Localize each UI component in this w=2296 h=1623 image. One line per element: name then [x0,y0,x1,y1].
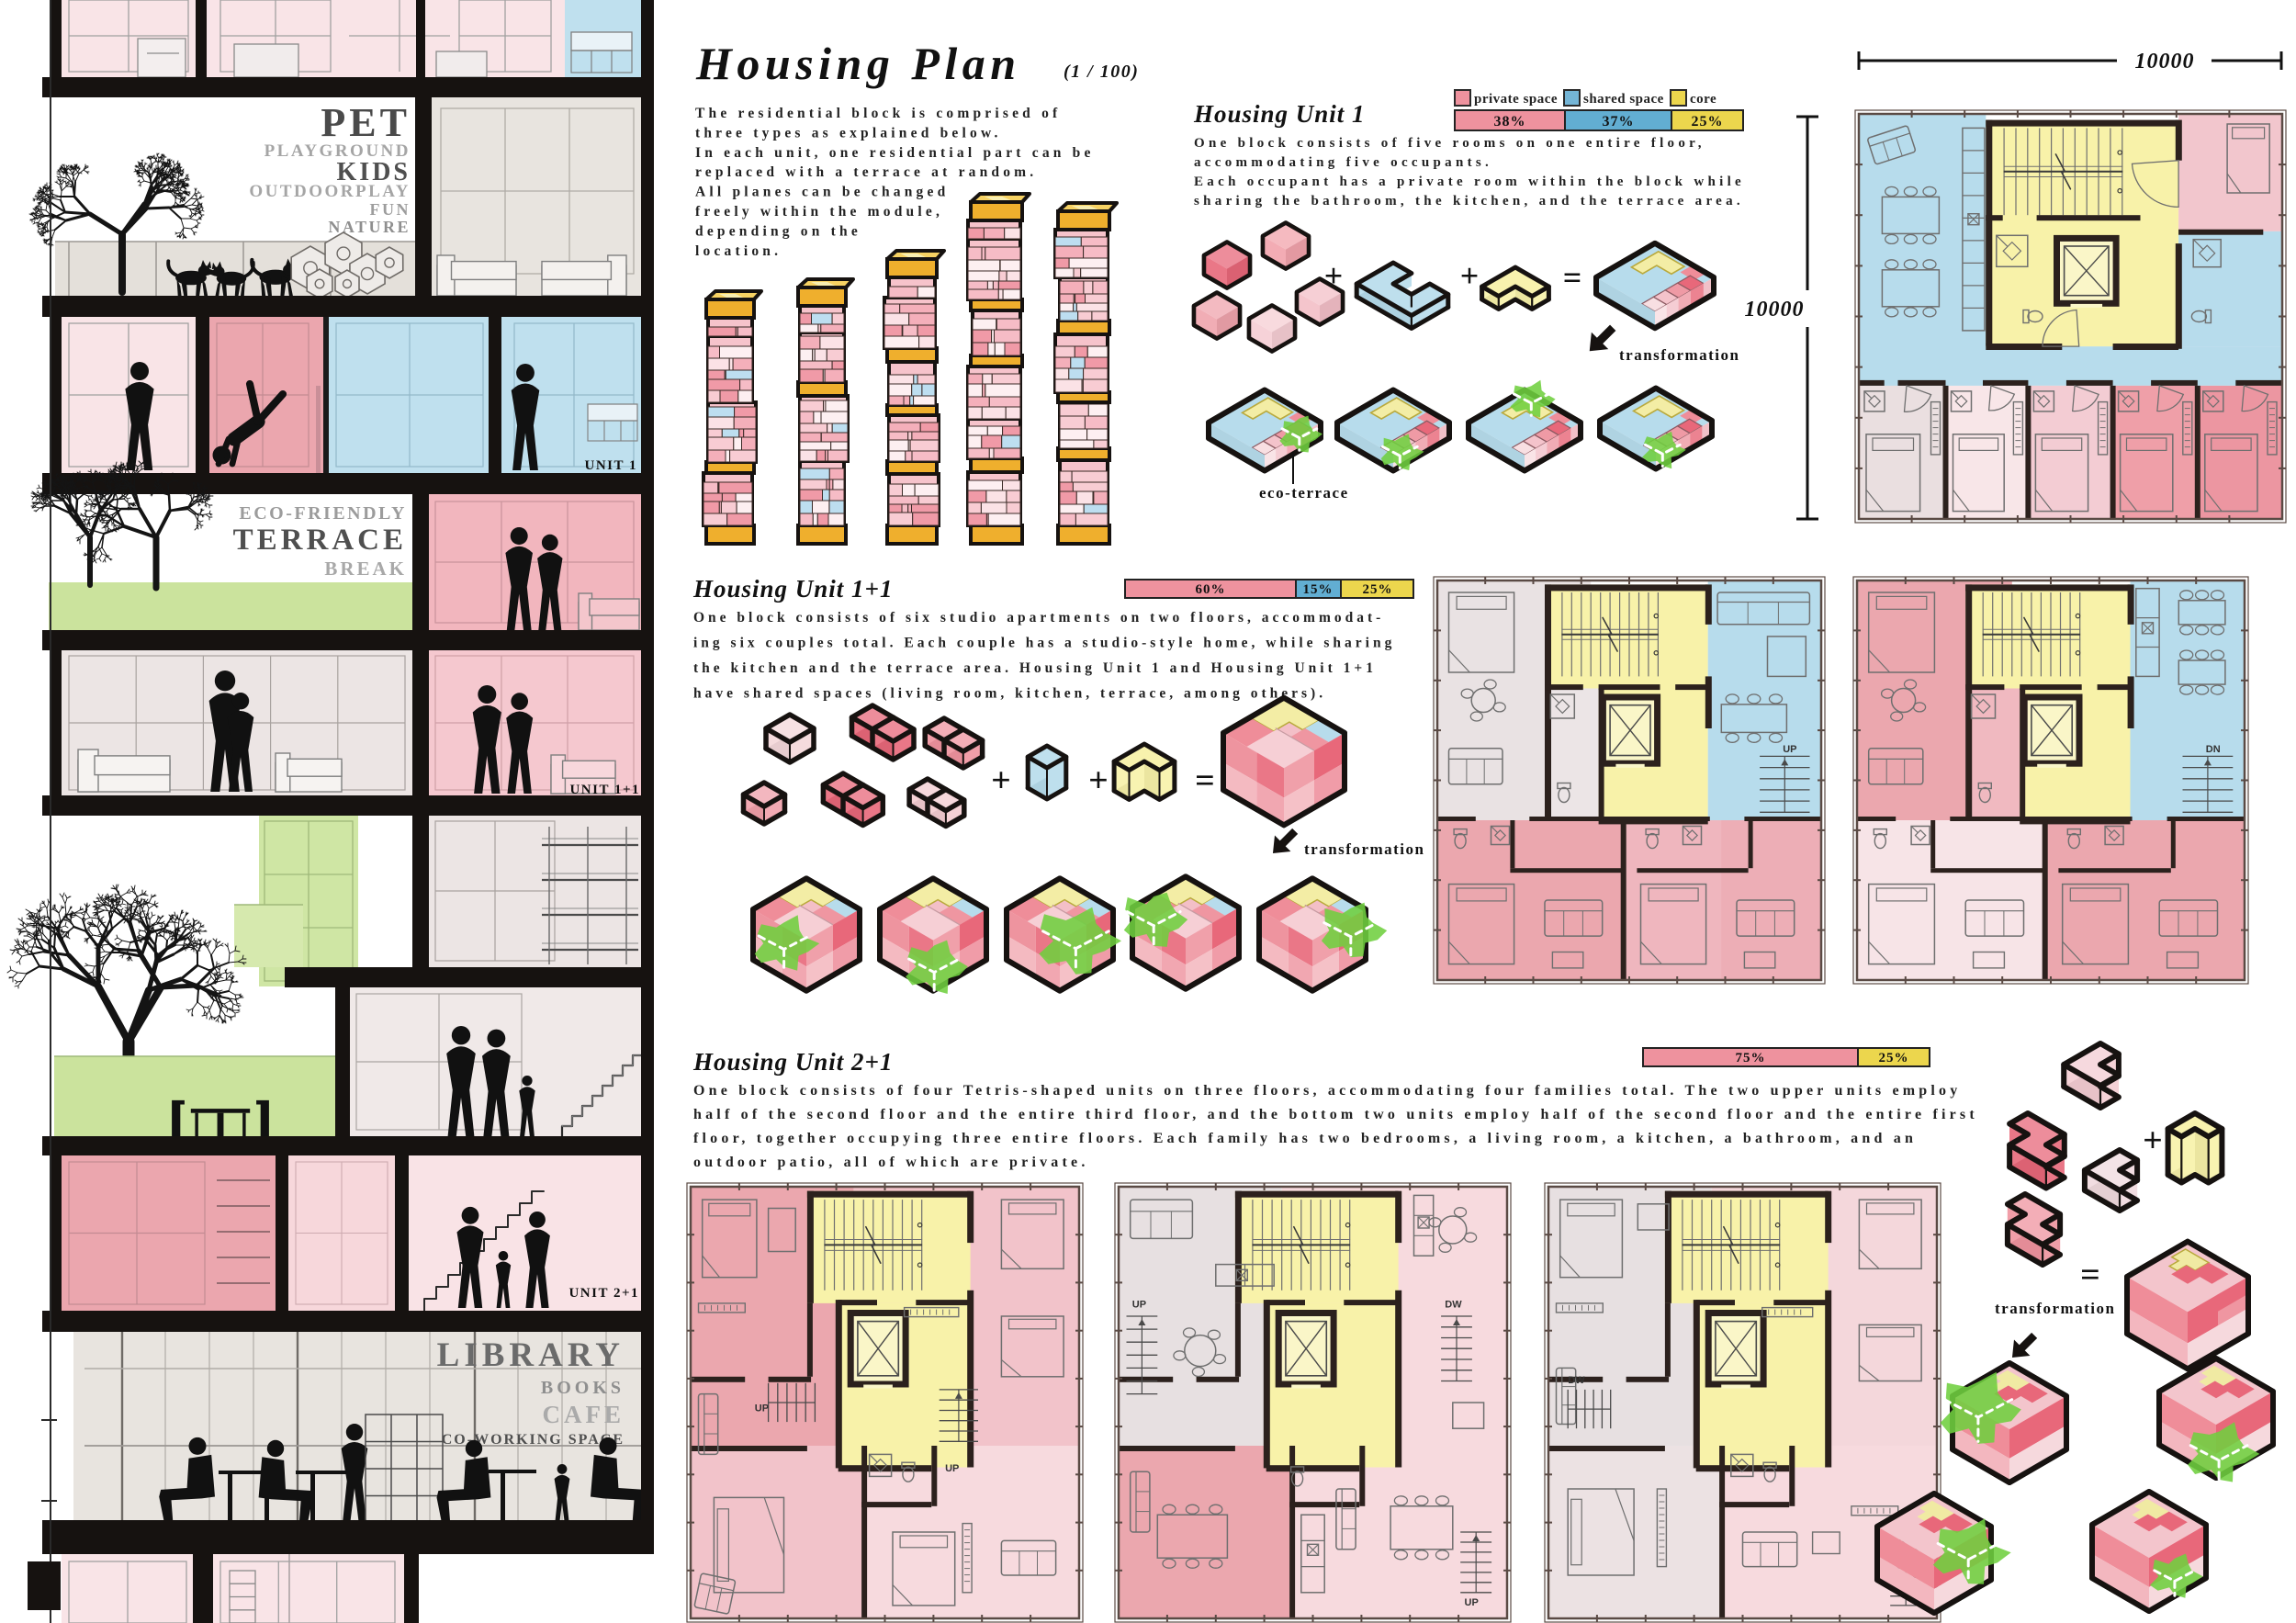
svg-text:BOOKS: BOOKS [541,1378,625,1398]
svg-text:UNIT 2+1: UNIT 2+1 [568,1286,639,1301]
svg-text:ing six couples total. Each co: ing six couples total. Each couple has a… [693,636,1395,651]
svg-text:25%: 25% [1692,114,1724,130]
svg-text:three types as explained below: three types as explained below. [695,125,1002,141]
svg-text:All planes can be changed: All planes can be changed [695,185,949,200]
svg-text:FUN: FUN [370,200,411,219]
svg-text:+: + [991,761,1011,800]
svg-text:DN: DN [2206,744,2221,755]
svg-text:Housing Unit 2+1: Housing Unit 2+1 [692,1048,893,1076]
svg-text:accommodating five occupants.: accommodating five occupants. [1194,155,1492,170]
svg-text:(1 / 100): (1 / 100) [1064,62,1139,82]
svg-text:+: + [1460,257,1480,294]
svg-text:=: = [2080,1256,2100,1294]
svg-text:The residential block is compr: The residential block is comprised of [695,106,1061,121]
svg-text:10000: 10000 [1745,298,1805,321]
svg-text:LIBRARY: LIBRARY [437,1336,625,1374]
svg-text:TERRACE: TERRACE [233,524,407,557]
svg-text:CAFE: CAFE [543,1401,625,1428]
svg-text:In each unit, one residential: In each unit, one residential part can b… [695,145,1095,161]
svg-text:BREAK: BREAK [324,558,407,580]
svg-text:floor, together occupying thre: floor, together occupying three entire f… [693,1131,1917,1146]
svg-text:One block consists of five roo: One block consists of five rooms on one … [1194,136,1705,151]
svg-text:Housing Unit 1: Housing Unit 1 [1193,100,1366,128]
svg-text:15%: 15% [1303,582,1334,597]
svg-text:ECO-FRIENDLY: ECO-FRIENDLY [239,503,407,524]
svg-text:One block consists of four Tet: One block consists of four Tetris-shaped… [693,1083,1961,1099]
svg-text:+: + [2143,1121,2163,1160]
svg-text:DW: DW [1445,1300,1462,1311]
svg-text:=: = [1563,259,1582,296]
svg-text:location.: location. [695,243,782,259]
svg-text:Housing Plan: Housing Plan [695,38,1021,89]
svg-text:the kitchen and the terrace ar: the kitchen and the terrace area. Housin… [693,660,1377,676]
svg-text:private space: private space [1474,92,1558,107]
svg-text:UP: UP [1465,1597,1479,1608]
svg-text:UNIT 1+1: UNIT 1+1 [569,783,640,797]
svg-text:Housing Unit 1+1: Housing Unit 1+1 [692,575,893,603]
svg-text:10000: 10000 [2135,50,2195,73]
svg-text:core: core [1690,92,1716,107]
svg-text:OUTDOORPLAY: OUTDOORPLAY [249,182,411,201]
svg-text:shared space: shared space [1583,92,1664,107]
svg-text:transformation: transformation [1995,1300,2115,1317]
svg-text:25%: 25% [1879,1051,1909,1065]
svg-text:75%: 75% [1736,1051,1766,1065]
svg-text:have shared spaces (living roo: have shared spaces (living room, kitchen… [693,686,1326,702]
svg-text:replaced with a terrace at ran: replaced with a terrace at random. [695,164,1037,180]
svg-text:UP: UP [755,1403,769,1414]
svg-text:60%: 60% [1196,582,1226,597]
svg-text:UNIT 1: UNIT 1 [585,458,638,473]
svg-text:=: = [1195,761,1215,800]
svg-text:UP: UP [1783,744,1796,755]
svg-text:+: + [1088,761,1109,800]
svg-text:half of the second floor and t: half of the second floor and the entire … [693,1107,1978,1122]
svg-text:transformation: transformation [1619,346,1739,364]
svg-text:DW: DW [1568,1375,1585,1386]
svg-text:depending on the: depending on the [695,223,861,239]
svg-text:eco-terrace: eco-terrace [1259,484,1349,502]
svg-text:37%: 37% [1603,114,1635,130]
svg-text:Each occupant has a private ro: Each occupant has a private room within … [1194,175,1745,189]
svg-text:38%: 38% [1494,114,1526,130]
svg-text:PET: PET [321,100,411,145]
svg-text:outdoor patio, all of which ar: outdoor patio, all of which are private. [693,1155,1089,1170]
svg-text:freely within the module,: freely within the module, [695,204,943,220]
svg-text:One block consists of six stud: One block consists of six studio apartme… [693,610,1384,626]
svg-text:UP: UP [945,1463,959,1474]
svg-text:+: + [1324,257,1344,294]
svg-text:25%: 25% [1363,582,1393,597]
svg-text:sharing the bathroom, the kitc: sharing the bathroom, the kitchen, and t… [1194,194,1744,209]
svg-text:transformation: transformation [1304,840,1424,858]
svg-text:UP: UP [1132,1300,1146,1311]
